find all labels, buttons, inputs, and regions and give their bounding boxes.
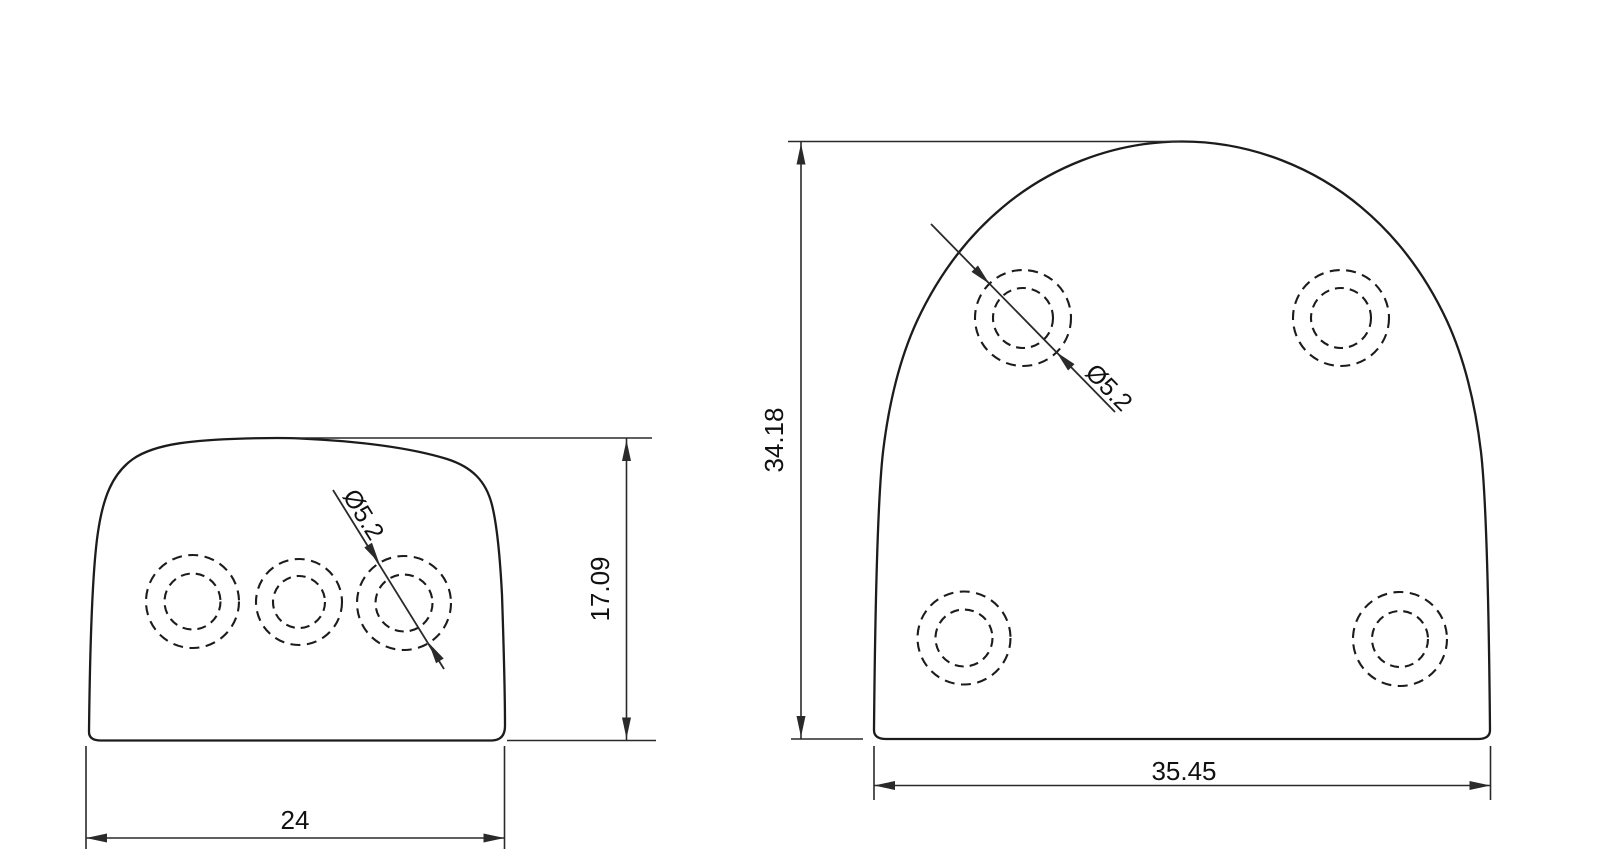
dimension-arrow-up xyxy=(797,144,806,165)
front-view-hole-topright-inner xyxy=(1311,288,1371,348)
front-view-width-label: 35.45 xyxy=(1151,756,1216,786)
side-view-hole-callout: Ø5.2 xyxy=(333,484,444,669)
side-view-height-dimension: 17.09 xyxy=(297,438,656,741)
front-view-width-dimension: 35.45 xyxy=(874,746,1491,800)
dimension-arrow-down xyxy=(622,718,631,739)
front-view-outline xyxy=(874,142,1490,740)
side-view-width-dimension: 24 xyxy=(86,746,505,849)
dimension-arrow-left xyxy=(86,834,107,843)
side-view-hole-1-inner xyxy=(165,574,221,630)
side-view-hole-diameter-label: Ø5.2 xyxy=(337,484,389,545)
diameter-arrow-upper xyxy=(364,543,383,566)
dimension-arrow-up xyxy=(622,440,631,461)
dimension-arrow-left xyxy=(874,781,895,790)
dimension-arrow-right xyxy=(484,834,505,843)
dimension-arrow-down xyxy=(797,716,806,737)
front-view-hole-bottomright-outer xyxy=(1353,592,1447,686)
side-view: 24 17.09 Ø5.2 xyxy=(86,438,656,849)
front-view-hole-topright-outer xyxy=(1293,270,1389,366)
front-view-hole-bottomright-inner xyxy=(1372,611,1428,667)
technical-drawing-canvas: 24 17.09 Ø5.2 xyxy=(0,0,1600,861)
front-view-height-dimension: 34.18 xyxy=(759,142,1180,740)
front-view-hole-bottomleft-outer xyxy=(918,592,1011,685)
side-view-hole-2-inner xyxy=(273,576,325,628)
side-view-height-label: 17.09 xyxy=(585,556,615,621)
front-view: 34.18 35.45 Ø5.2 xyxy=(759,142,1491,801)
side-view-width-label: 24 xyxy=(281,805,310,835)
front-view-hole-diameter-label: Ø5.2 xyxy=(1080,359,1138,417)
front-view-height-label: 34.18 xyxy=(759,407,789,472)
side-view-outline xyxy=(89,438,505,741)
side-view-hole-1-outer xyxy=(146,555,239,648)
front-view-hole-callout: Ø5.2 xyxy=(931,224,1138,417)
dimension-arrow-right xyxy=(1470,781,1491,790)
drawing-page: 24 17.09 Ø5.2 xyxy=(0,0,1600,861)
side-view-hole-2-outer xyxy=(256,559,342,645)
front-view-hole-bottomleft-inner xyxy=(936,610,993,667)
